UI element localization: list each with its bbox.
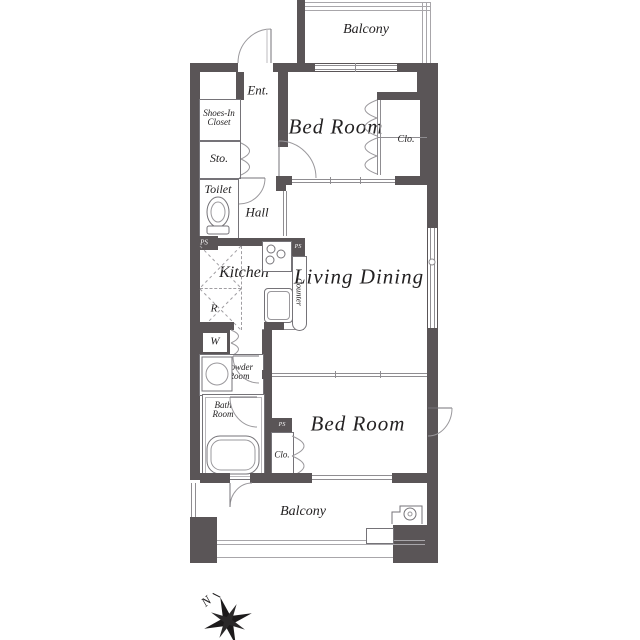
- sink-fixture: [267, 291, 290, 320]
- door-swing: [239, 178, 266, 205]
- dashed-cross: [200, 246, 241, 288]
- balcony-railing: [217, 557, 393, 558]
- ps-label: PS: [295, 244, 302, 250]
- room-label-entrance: Ent.: [247, 84, 268, 97]
- door-swing: [230, 397, 257, 427]
- bifold-door: [241, 143, 261, 175]
- window-tick: [335, 371, 336, 378]
- sliding-door: [286, 191, 287, 236]
- wall: [236, 72, 244, 100]
- stove-burners: [262, 241, 290, 270]
- wall: [278, 63, 288, 147]
- wall: [190, 517, 217, 563]
- door-swing: [238, 29, 273, 64]
- balcony-railing: [303, 10, 431, 11]
- room-label-closet-top: Clo.: [398, 135, 415, 145]
- balcony-railing: [422, 2, 423, 63]
- wall: [262, 370, 272, 379]
- window-tick: [380, 371, 381, 378]
- room-label-balcony-bottom: Balcony: [280, 505, 326, 519]
- room-label-living-dining: Living Dining: [294, 267, 424, 288]
- dashed-line: [241, 246, 243, 330]
- room-label-toilet: Toilet: [205, 183, 232, 195]
- sliding-door: [272, 376, 427, 377]
- ps-label: PS: [279, 422, 286, 428]
- wall: [190, 322, 234, 330]
- sliding-door: [272, 373, 427, 374]
- balcony-railing: [303, 2, 431, 3]
- wall: [377, 92, 427, 100]
- floor-plan: Balcony Ent. Shoes-In Closet Sto. Toilet: [0, 0, 640, 640]
- room-label-balcony-top: Balcony: [343, 23, 389, 37]
- room-label-hall: Hall: [245, 206, 268, 219]
- room-label-closet-bottom: Clo.: [274, 451, 289, 460]
- window: [315, 65, 397, 66]
- wall: [420, 100, 438, 185]
- window: [430, 228, 431, 328]
- wall: [297, 0, 305, 63]
- bifold-door: [292, 436, 312, 476]
- door-swing: [230, 483, 252, 508]
- balcony-railing: [303, 6, 431, 7]
- window: [195, 483, 196, 517]
- room-label-bedroom-bottom: Bed Room: [311, 414, 406, 435]
- wall: [264, 322, 284, 330]
- sliding-door: [292, 179, 395, 180]
- window: [312, 475, 392, 476]
- room-label-storage: Sto.: [210, 152, 228, 164]
- window: [434, 228, 435, 328]
- bathtub-fixture: [206, 435, 260, 475]
- window: [312, 479, 392, 480]
- toilet-fixture: [205, 196, 233, 236]
- window-tick: [330, 177, 331, 184]
- sliding-door: [292, 182, 395, 183]
- window: [191, 483, 192, 517]
- door-swing: [233, 356, 259, 383]
- sink-fixture: [202, 357, 234, 393]
- wall: [392, 473, 428, 483]
- wall: [276, 176, 292, 185]
- window: [315, 69, 397, 70]
- balcony-step: [366, 528, 394, 544]
- room-label-washer: W: [210, 337, 219, 348]
- balcony-railing: [217, 544, 425, 545]
- sliding-door: [283, 191, 284, 236]
- bifold-door: [357, 100, 377, 174]
- door-swing: [428, 406, 454, 438]
- window-tick: [355, 63, 356, 72]
- wall: [395, 176, 428, 185]
- wall: [200, 473, 230, 483]
- balcony-railing: [426, 2, 427, 63]
- bifold-door: [231, 330, 249, 356]
- room-label-refrigerator: R: [211, 304, 218, 315]
- door-swing: [279, 141, 316, 178]
- room-label-shoes-closet: Shoes-In Closet: [203, 109, 235, 127]
- wall: [250, 473, 312, 483]
- balcony-railing: [430, 2, 431, 63]
- wall: [276, 185, 286, 191]
- window-tick: [360, 177, 361, 184]
- drain-fixture: [390, 502, 424, 528]
- window-handle: [428, 258, 438, 268]
